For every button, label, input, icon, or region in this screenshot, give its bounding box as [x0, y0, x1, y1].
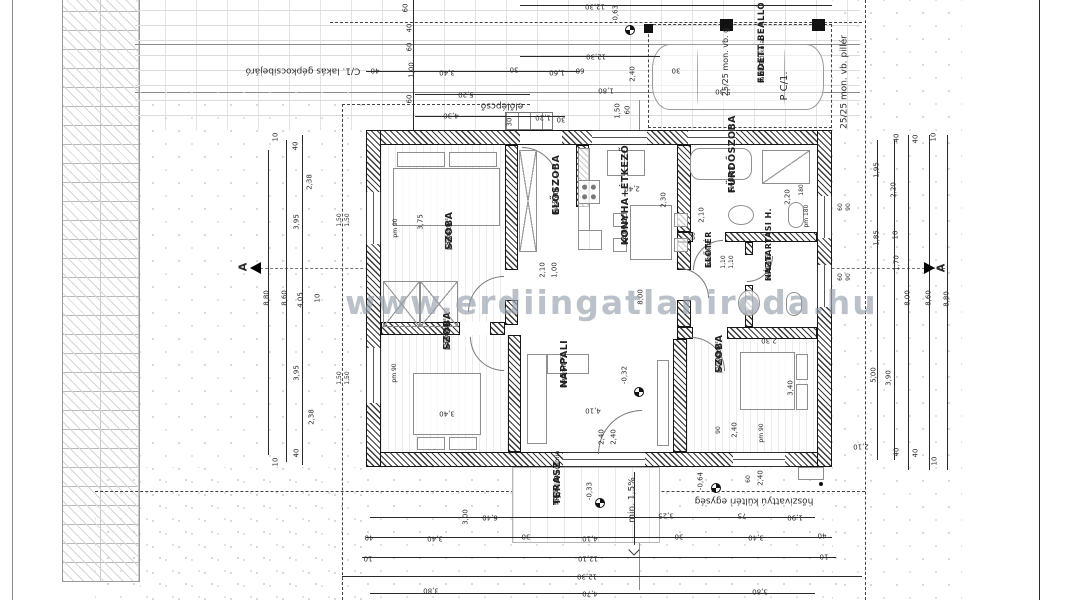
- bed: [413, 373, 481, 435]
- level-marker: [634, 387, 644, 397]
- bathtub: [690, 148, 752, 180]
- concrete-pillar: [644, 24, 653, 33]
- slope-arrow-line: [634, 472, 635, 548]
- dim-line: [415, 94, 530, 95]
- dim-line: [268, 150, 269, 455]
- dim-line: [302, 135, 303, 465]
- dim-line: [286, 140, 287, 462]
- car-top-view: [652, 44, 824, 110]
- washbasin: [728, 205, 754, 225]
- pillow: [449, 437, 477, 450]
- plot-edge-line: [1039, 0, 1040, 600]
- dim-line: [415, 116, 565, 117]
- room-area: 8,70 m²: [757, 56, 765, 83]
- wall-szoba2-nappali: [508, 335, 521, 452]
- pillow: [417, 437, 445, 450]
- kitchen-sink: [578, 230, 602, 250]
- pillow: [397, 152, 445, 167]
- dim-line: [413, 0, 414, 130]
- leader-dot: [819, 482, 823, 486]
- section-arrow-right: [924, 262, 935, 274]
- level-marker: [595, 498, 605, 508]
- yard-bottom: [95, 467, 839, 600]
- boundary-line-plot: [342, 104, 530, 105]
- dim-line: [947, 135, 948, 470]
- wall-nappali-szoba3: [673, 339, 687, 452]
- room-area: 4,52 m²: [551, 188, 559, 215]
- room-area: 12,06 m²: [714, 341, 722, 373]
- room-area: 12,00 m²: [620, 213, 628, 245]
- concrete-pillar: [812, 19, 825, 31]
- road-edge-line: [12, 0, 13, 600]
- dim-line: [520, 5, 832, 6]
- window: [592, 130, 647, 145]
- hall-closet: [519, 150, 537, 252]
- floor-plan-drawing: SZOBA parketta 13,61 m² SZOBA parketta 1…: [0, 0, 1067, 600]
- room-area: 13,61 m²: [444, 218, 452, 250]
- wall-eloter-haztartasi: [745, 242, 753, 255]
- room-area: 16,21 m²: [559, 356, 567, 388]
- entry-door-opening: [520, 131, 562, 144]
- toilet: [788, 202, 804, 228]
- window: [366, 348, 381, 403]
- dim-line: [366, 71, 580, 72]
- dim-line: [370, 517, 815, 518]
- wall-between-bedrooms: [490, 322, 505, 335]
- window: [366, 192, 381, 244]
- dim-line: [342, 576, 862, 577]
- section-arrow-left: [250, 262, 261, 274]
- terrace-door: [563, 452, 645, 467]
- dim-line: [908, 135, 909, 470]
- dim-line: [894, 140, 895, 460]
- pillow: [796, 384, 808, 410]
- room-area: 3,06 m²: [764, 254, 772, 281]
- room-area: 1,54 m²: [704, 241, 712, 268]
- dim-line: [929, 135, 930, 470]
- room-area: 7,48 m²: [727, 166, 735, 193]
- boundary-line-bottom: [95, 491, 865, 492]
- window: [817, 196, 832, 238]
- level-marker: [711, 483, 721, 493]
- dim-line: [520, 56, 660, 57]
- dim-line: [366, 537, 832, 538]
- concrete-pillar: [720, 19, 733, 31]
- terrace-area: [512, 467, 660, 543]
- sofa: [527, 354, 547, 444]
- pillow: [796, 354, 808, 380]
- watermark: www.erdiingatlaniroda.hu: [345, 283, 878, 322]
- tv-cabinet: [657, 360, 669, 446]
- boundary-line-top: [330, 22, 862, 23]
- shower: [762, 150, 810, 184]
- window: [733, 452, 785, 467]
- boundary-line-plot-v: [342, 104, 343, 600]
- wall-szoba1-hall: [505, 145, 518, 270]
- room-area: 14,50 m²: [552, 473, 560, 505]
- room-area: 13,61 m²: [442, 318, 450, 350]
- chair: [674, 213, 688, 227]
- chair: [674, 238, 688, 252]
- entry-steps: [505, 112, 553, 130]
- heat-pump-unit: [798, 467, 824, 480]
- stove: [578, 180, 600, 204]
- bed: [740, 352, 795, 410]
- dim-line: [362, 557, 836, 558]
- level-marker: [625, 25, 635, 35]
- wall-szoba3-top: [727, 327, 817, 339]
- dim-line: [370, 593, 815, 594]
- pillow: [449, 152, 497, 167]
- dining-table: [630, 205, 672, 260]
